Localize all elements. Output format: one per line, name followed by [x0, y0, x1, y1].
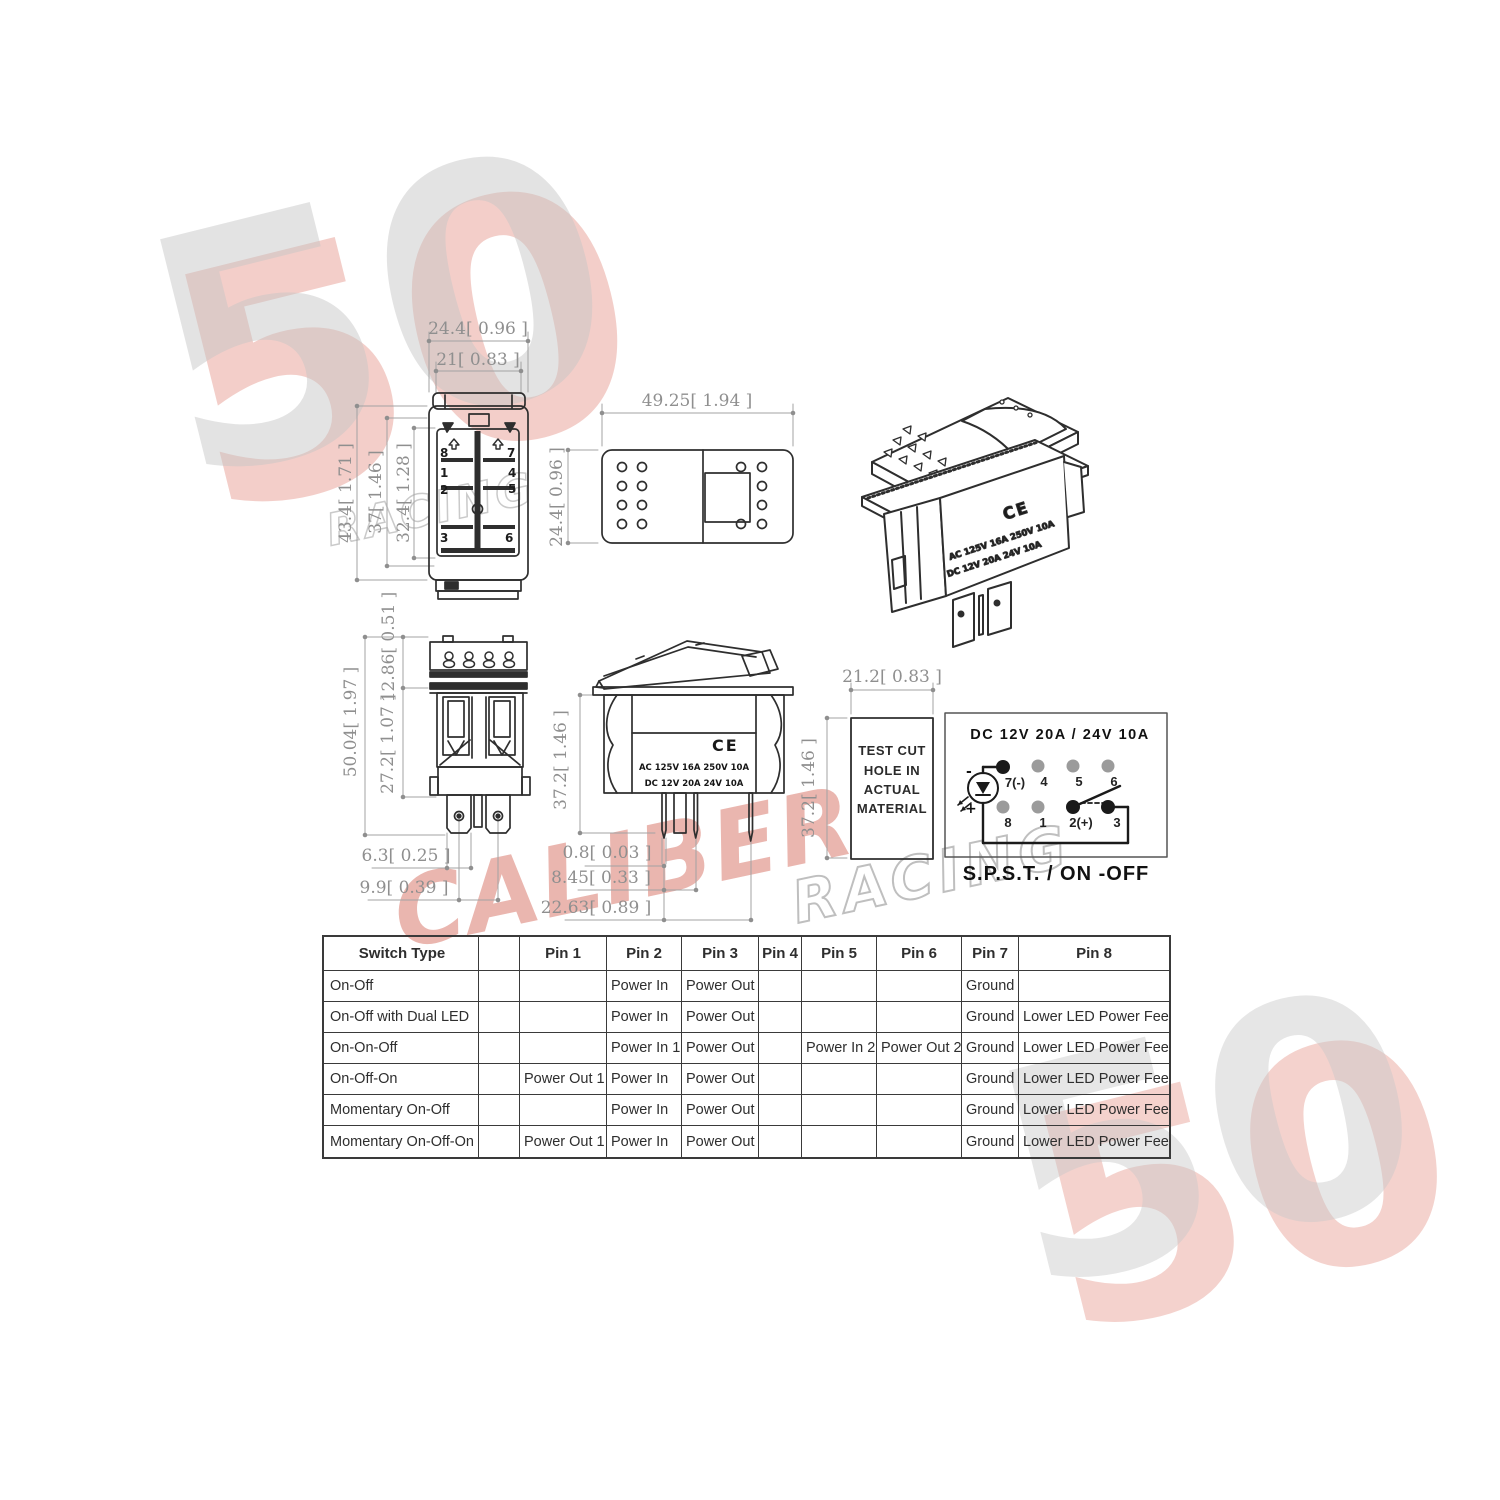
- table-cell: [802, 971, 877, 1002]
- table-cell: [877, 1002, 962, 1033]
- dim-front-terminal-height: 12.86[ 0.51 ]: [379, 592, 399, 703]
- table-cell: [520, 1095, 607, 1126]
- table-cell: Power Out 2: [877, 1033, 962, 1064]
- wiring-caption: S.P.S.T. / ON -OFF: [963, 863, 1150, 885]
- table-cell: Lower LED Power Feed: [1019, 1002, 1169, 1033]
- spec-sheet: 50 50 RACING CALIBER RACING 50 50: [0, 0, 1500, 1500]
- rear-pin-label: 3: [440, 531, 448, 545]
- test-hole-line2: HOLE IN: [864, 763, 920, 778]
- pin-label-4: 4: [1040, 774, 1048, 789]
- table-cell: [759, 1126, 802, 1157]
- table-cell: Power Out 1: [682, 1033, 759, 1064]
- side-rating-2: DC 12V 20A 24V 10A: [645, 779, 744, 789]
- table-cell: [802, 1095, 877, 1126]
- pin-configuration-table: Switch Type Pin 1 Pin 2 Pin 3 Pin 4 Pin …: [322, 935, 1171, 1159]
- table-cell: Power Out 1: [520, 1064, 607, 1095]
- pin-dot-1: [1032, 801, 1045, 814]
- table-cell: Power Out: [682, 1095, 759, 1126]
- table-cell: [802, 1064, 877, 1095]
- pin-label-2: 2(+): [1069, 815, 1092, 830]
- led-plus-sign: +: [965, 801, 977, 817]
- table-cell: Power In: [607, 1126, 682, 1157]
- dim-side-pin-thickness: 0.8[ 0.03 ]: [563, 843, 652, 863]
- table-cell: Ground: [962, 1002, 1019, 1033]
- table-cell: Power In: [607, 971, 682, 1002]
- table-cell: Power Out: [682, 971, 759, 1002]
- table-header-cell: Pin 5: [802, 937, 877, 971]
- table-header-cell: Pin 4: [759, 937, 802, 971]
- panel-cutout-view: 49.25[ 1.94 ] 24.4[ 0.96 ]: [547, 391, 795, 547]
- table-cell: Lower LED Power Feed: [1019, 1064, 1169, 1095]
- dim-rear-inner-height: 32.4[ 1.28 ]: [394, 443, 414, 543]
- side-rating-1: AC 125V 16A 250V 10A: [639, 763, 750, 773]
- pin-dot-7: [996, 760, 1010, 774]
- table-cell: [877, 1126, 962, 1157]
- table-header-cell: [479, 937, 520, 971]
- table-cell: Ground: [962, 971, 1019, 1002]
- table-cell: Power In 2: [802, 1033, 877, 1064]
- side-view: 37.2[ 1.46 ] 0.8[ 0.03 ] 8.45[ 0.33 ] 22…: [541, 641, 793, 922]
- table-cell: [759, 1064, 802, 1095]
- table-cell: [877, 1095, 962, 1126]
- table-cell: [802, 1126, 877, 1157]
- table-cell: Power Out 2: [682, 1126, 759, 1157]
- pin-dot-2: [1066, 800, 1080, 814]
- table-header-cell: Pin 6: [877, 937, 962, 971]
- table-cell: Ground: [962, 1064, 1019, 1095]
- wiring-title: DC 12V 20A / 24V 10A: [970, 727, 1149, 743]
- table-cell: Ground: [962, 1033, 1019, 1064]
- pin-label-1: 1: [1039, 815, 1046, 830]
- rear-pin-label: 5: [508, 482, 516, 496]
- side-ce-mark: CE: [712, 736, 739, 755]
- pin-dot-6: [1102, 760, 1115, 773]
- pin-label-7: 7(-): [1005, 775, 1025, 790]
- table-cell: [877, 971, 962, 1002]
- table-cell: [479, 1064, 520, 1095]
- table-cell: On-Off: [324, 971, 479, 1002]
- table-cell: On-On-Off: [324, 1033, 479, 1064]
- dim-side-pin-offset1: 8.45[ 0.33 ]: [551, 868, 651, 888]
- table-header-cell: Switch Type: [324, 937, 479, 971]
- dim-front-body-height: 27.2[ 1.07 ]: [378, 694, 398, 794]
- test-hole-line3: ACTUAL: [864, 782, 920, 797]
- rear-pin-label: 8: [440, 446, 448, 460]
- technical-drawing: 24.4[ 0.96 ] 21[ 0.83 ] 43.4[ 1.71 ] 37[…: [0, 0, 1500, 1500]
- dim-rear-body-height: 37[ 1.46 ]: [366, 450, 386, 534]
- table-cell: Power Out: [682, 1002, 759, 1033]
- rear-pin-label: 7: [507, 446, 515, 460]
- table-cell: [759, 1002, 802, 1033]
- test-hole-line1: TEST CUT: [858, 743, 926, 758]
- dim-hole-width: 21.2[ 0.83 ]: [842, 667, 942, 687]
- dim-hole-height: 37.2[ 1.46 ]: [799, 738, 819, 838]
- rear-pin-label: 4: [508, 466, 516, 480]
- table-cell: Lower LED Power Feed: [1019, 1033, 1169, 1064]
- table-cell: Power In: [607, 1064, 682, 1095]
- table-cell: [479, 1095, 520, 1126]
- table-cell: Momentary On-Off-On: [324, 1126, 479, 1157]
- table-cell: [479, 1126, 520, 1157]
- table-cell: [479, 1002, 520, 1033]
- table-cell: Lower LED Power Feed: [1019, 1126, 1169, 1157]
- table-cell: Power In: [607, 1002, 682, 1033]
- pin-dot-5: [1067, 760, 1080, 773]
- table-cell: Ground: [962, 1126, 1019, 1157]
- dim-rear-inner-width: 21[ 0.83 ]: [436, 350, 520, 370]
- rear-pin-label: 6: [505, 531, 513, 545]
- dim-front-total-height: 50.04[ 1.97 ]: [341, 667, 361, 778]
- table-cell: [877, 1064, 962, 1095]
- table-cell: Momentary On-Off: [324, 1095, 479, 1126]
- table-cell: [479, 1033, 520, 1064]
- pin-dot-8: [997, 801, 1010, 814]
- dim-cutout-height: 24.4[ 0.96 ]: [547, 447, 567, 547]
- table-cell: On-Off with Dual LED: [324, 1002, 479, 1033]
- test-hole-view: 21.2[ 0.83 ] 37.2[ 1.46 ] TEST CUT HOLE …: [799, 667, 942, 860]
- table-header-cell: Pin 2: [607, 937, 682, 971]
- pin-label-8: 8: [1004, 815, 1011, 830]
- led-symbol: [958, 773, 998, 811]
- table-cell: Power In: [607, 1095, 682, 1126]
- test-hole-line4: MATERIAL: [857, 801, 927, 816]
- table-cell: Power Out 1: [520, 1126, 607, 1157]
- pin-dot-3: [1101, 800, 1115, 814]
- wiring-diagram: DC 12V 20A / 24V 10A: [945, 713, 1167, 885]
- rear-view: 24.4[ 0.96 ] 21[ 0.83 ] 43.4[ 1.71 ] 37[…: [336, 319, 530, 599]
- dim-rear-outer-width: 24.4[ 0.96 ]: [428, 319, 528, 339]
- dim-side-pin-offset2: 22.63[ 0.89 ]: [541, 898, 652, 918]
- table-cell: [520, 1002, 607, 1033]
- dim-side-height: 37.2[ 1.46 ]: [551, 710, 571, 810]
- table-cell: [802, 1002, 877, 1033]
- table-cell: [520, 1033, 607, 1064]
- table-cell: [479, 971, 520, 1002]
- table-header-cell: Pin 7: [962, 937, 1019, 971]
- dim-front-leg-width: 6.3[ 0.25 ]: [362, 846, 451, 866]
- table-cell: On-Off-On: [324, 1064, 479, 1095]
- table-cell: Power In 1: [607, 1033, 682, 1064]
- dim-front-hole-spacing: 9.9[ 0.39 ]: [360, 878, 449, 898]
- table-cell: [759, 1095, 802, 1126]
- table-cell: Lower LED Power Feed: [1019, 1095, 1169, 1126]
- rear-pin-label: 2: [440, 483, 448, 497]
- table-cell: [759, 971, 802, 1002]
- rear-pin-label: 1: [440, 466, 448, 480]
- pin-dot-4: [1032, 760, 1045, 773]
- perspective-view: CE AC 125V 16A 250V 10A DC 12V 20A 24V 1…: [862, 398, 1088, 647]
- dim-cutout-width: 49.25[ 1.94 ]: [642, 391, 753, 411]
- pin-label-6: 6: [1110, 774, 1117, 789]
- led-minus-sign: -: [966, 764, 972, 780]
- table-cell: [520, 971, 607, 1002]
- pin-label-3: 3: [1113, 815, 1120, 830]
- front-view: 12.86[ 0.51 ] 50.04[ 1.97 ] 27.2[ 1.07 ]…: [341, 592, 530, 903]
- dim-rear-outer-height: 43.4[ 1.71 ]: [336, 443, 356, 543]
- table-cell: Ground: [962, 1095, 1019, 1126]
- table-cell: Power Out 2: [682, 1064, 759, 1095]
- table-cell: [1019, 971, 1169, 1002]
- pin-label-5: 5: [1075, 774, 1082, 789]
- table-cell: [759, 1033, 802, 1064]
- table-header-cell: Pin 3: [682, 937, 759, 971]
- table-header-cell: Pin 8: [1019, 937, 1169, 971]
- table-header-cell: Pin 1: [520, 937, 607, 971]
